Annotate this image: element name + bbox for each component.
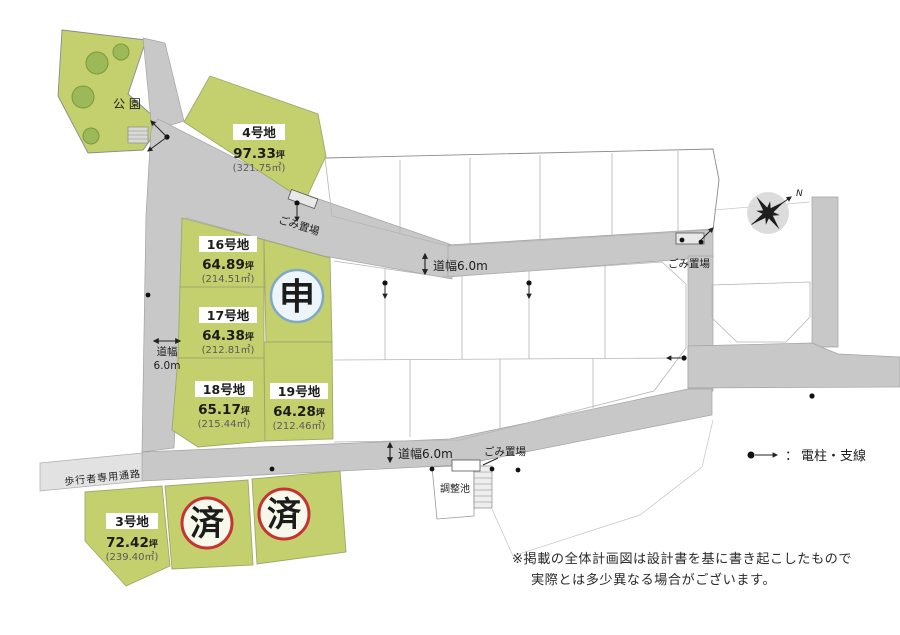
tree-icon <box>72 86 94 108</box>
tree-icon <box>86 52 108 74</box>
sold-mark: 済 <box>259 489 309 539</box>
road-width-label-left-line1: 道幅 <box>157 345 178 358</box>
lot-name: 19号地 <box>278 384 321 399</box>
legend-separator: ： <box>785 449 798 464</box>
lot-area-sqm: (215.44㎡) <box>198 418 251 430</box>
note-line-1: ※掲載の全体計画図は設計書を基に書き起こしたもので <box>512 550 852 567</box>
lot-area-sqm: (212.81㎡) <box>202 344 255 356</box>
tree-icon <box>113 44 129 60</box>
site-plan-svg: 公 園 <box>0 0 900 635</box>
lot-name: 17号地 <box>207 308 250 323</box>
lot-area-sqm: (321.75㎡) <box>233 162 286 174</box>
lot-name: 18号地 <box>203 382 246 397</box>
road-right-vertical <box>812 197 838 347</box>
utility-pole-icon <box>516 468 521 473</box>
utility-pole-icon <box>430 467 435 472</box>
utility-pole-icon <box>490 467 495 472</box>
park-label: 公 園 <box>113 97 141 111</box>
note-line-2: 実際とは多少異なる場合がございます。 <box>531 571 776 588</box>
utility-pole-icon <box>526 280 531 298</box>
road-width-label-top: 道幅6.0m <box>433 258 488 273</box>
lot-area-sqm: (212.46㎡) <box>273 420 326 432</box>
steps <box>128 127 148 143</box>
garbage-label: ごみ置場 <box>668 257 710 270</box>
site-boundary-top <box>325 149 719 230</box>
compass-north-label: N <box>796 189 803 199</box>
lot-name: 16号地 <box>207 237 250 252</box>
pole-legend-dot <box>748 452 755 459</box>
lot-row-middle-upper-dividers <box>385 266 605 360</box>
site-plan-map: 公 園 <box>0 0 900 635</box>
sold-mark: 済 <box>182 498 232 548</box>
lot-name: 4号地 <box>242 125 276 140</box>
utility-pole-icon <box>270 467 275 472</box>
applied-character: 申 <box>279 277 315 318</box>
disclaimer-note: ※掲載の全体計画図は設計書を基に書き起こしたもので 実際とは多少異なる場合がござ… <box>512 550 852 588</box>
compass-rose-icon: N <box>747 189 803 234</box>
road-width-label-left-line2: 6.0m <box>154 360 181 372</box>
lot-area-sqm: (239.40㎡) <box>106 551 159 563</box>
lot-name: 3号地 <box>115 514 149 529</box>
garbage-label: ごみ置場 <box>484 445 526 458</box>
applied-mark: 申 <box>271 270 323 322</box>
tree-icon <box>83 128 99 144</box>
utility-pole-icon <box>146 293 151 298</box>
hatched-steps <box>474 466 492 508</box>
pond-label: 調整池 <box>440 482 470 495</box>
lot-row-middle-splitline <box>334 358 686 360</box>
road-right-connector <box>688 343 900 388</box>
legend-label: 電柱・支線 <box>801 448 866 464</box>
utility-pole-icon <box>809 393 814 398</box>
garbage-station <box>452 460 480 471</box>
lot-row-top-dividers <box>400 151 678 245</box>
lot-right-middle-outline <box>712 282 810 342</box>
legend: ： 電柱・支線 <box>748 448 867 464</box>
sold-character: 済 <box>190 504 225 544</box>
lot-area-sqm: (214.51㎡) <box>202 273 255 285</box>
sold-character: 済 <box>267 495 302 535</box>
road-width-label-bottom: 道幅6.0m <box>398 446 453 461</box>
utility-pole-icon <box>382 280 387 298</box>
